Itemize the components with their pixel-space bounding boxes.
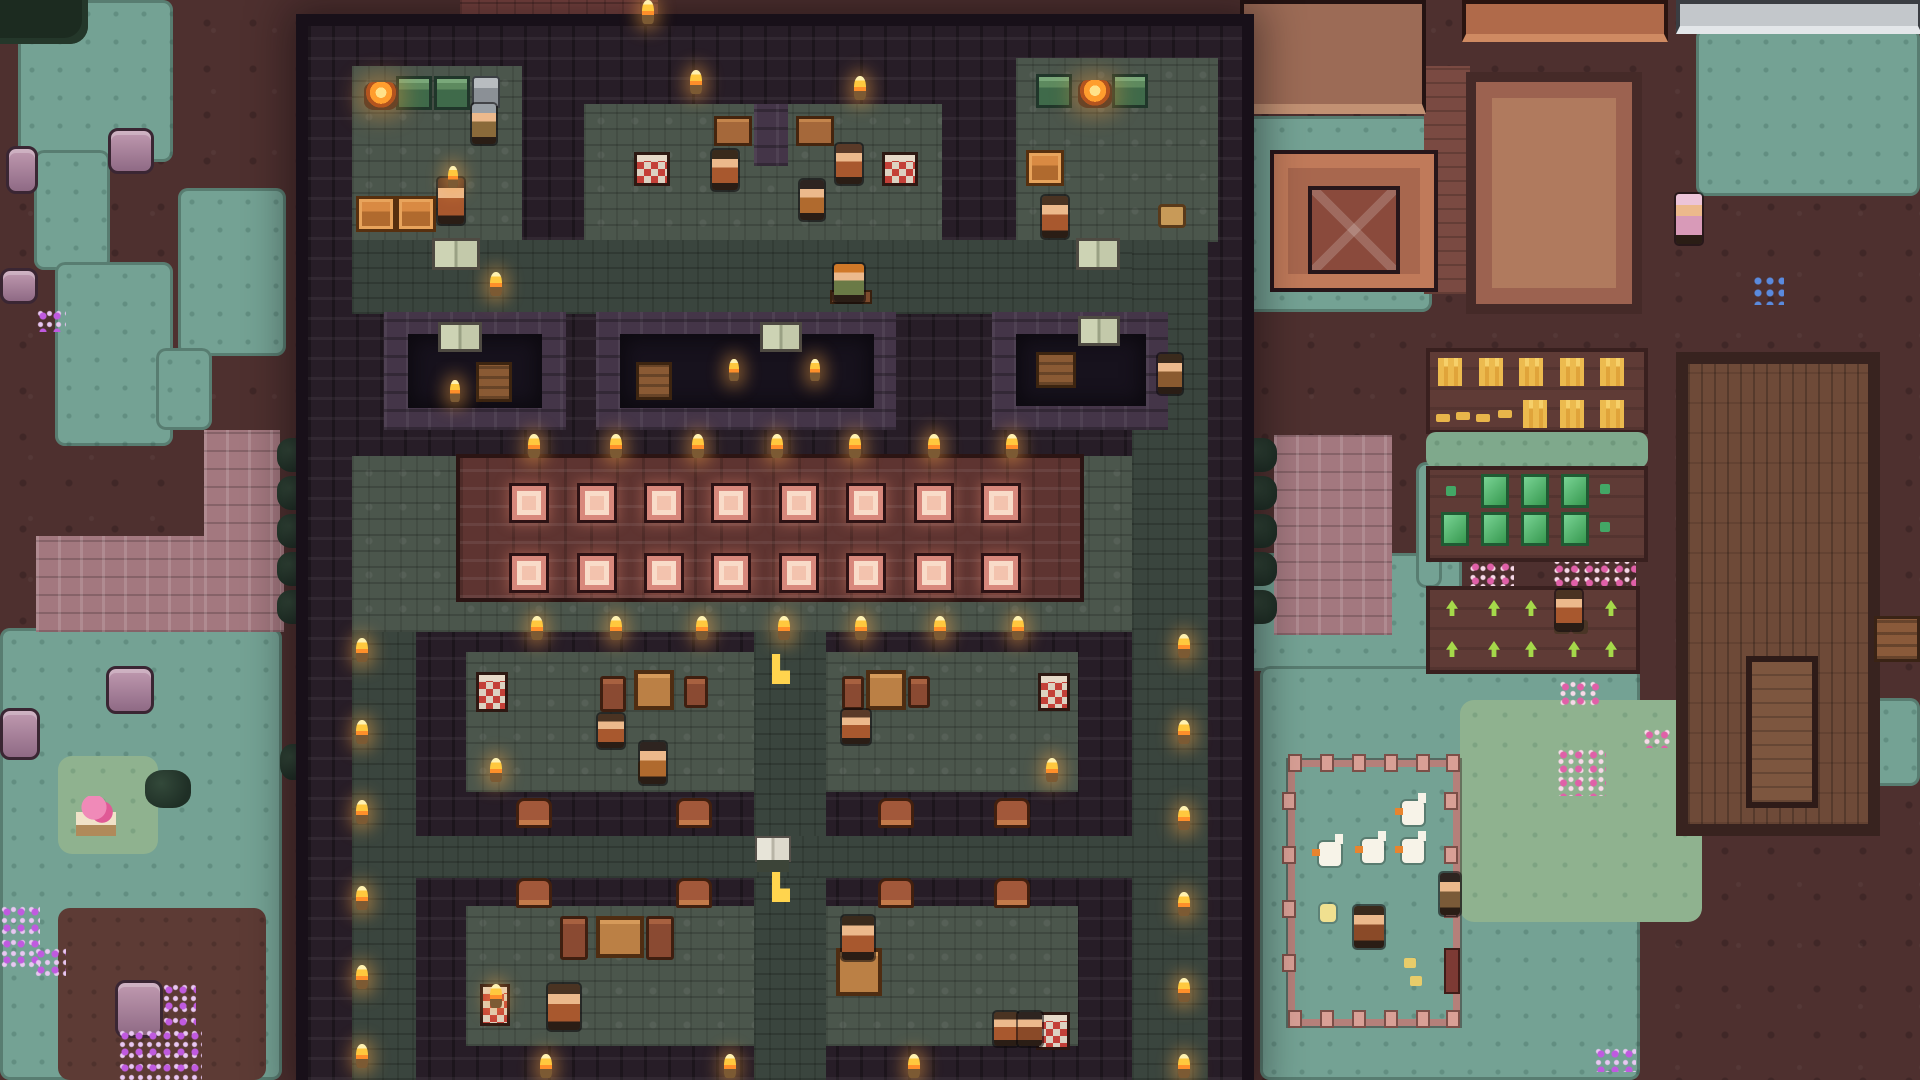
wheat[interactable] — [1560, 358, 1584, 386]
pC — [1676, 0, 1920, 34]
pDi — [1308, 186, 1400, 274]
torch[interactable] — [356, 886, 368, 910]
torch[interactable] — [450, 380, 460, 402]
flowers-pink — [1556, 748, 1606, 796]
campfire[interactable] — [364, 82, 398, 110]
teal — [1696, 28, 1920, 196]
wheat[interactable] — [1600, 400, 1624, 428]
mushroom[interactable] — [76, 796, 116, 836]
trees — [0, 0, 88, 44]
seat[interactable] — [512, 486, 546, 520]
crate[interactable] — [476, 362, 512, 402]
fence-post — [1282, 954, 1296, 972]
bed-green[interactable] — [396, 76, 432, 110]
hedge — [145, 770, 191, 808]
villager[interactable] — [800, 180, 824, 220]
door-brown[interactable] — [516, 798, 552, 828]
table[interactable] — [866, 670, 906, 710]
bed-green[interactable] — [1112, 74, 1148, 108]
torch[interactable] — [490, 758, 502, 782]
hedge — [1241, 514, 1277, 548]
seat[interactable] — [580, 486, 614, 520]
flowers-purple — [1594, 1046, 1636, 1072]
torch[interactable] — [540, 1054, 552, 1078]
rock — [108, 128, 154, 174]
seat[interactable] — [782, 486, 816, 520]
door-brown[interactable] — [994, 798, 1030, 828]
villager[interactable] — [1042, 196, 1068, 238]
wheat-stub[interactable] — [1436, 414, 1450, 422]
chicken[interactable] — [1362, 839, 1384, 863]
door-stone[interactable] — [1078, 316, 1120, 346]
table[interactable] — [596, 916, 644, 958]
hedge — [1241, 438, 1277, 472]
rock — [0, 708, 40, 760]
bed-checker[interactable] — [1038, 673, 1070, 711]
chest[interactable] — [396, 196, 436, 232]
flowers-pink — [1558, 680, 1600, 706]
wheat-stub[interactable] — [1498, 410, 1512, 418]
seat[interactable] — [647, 486, 681, 520]
torch[interactable] — [855, 616, 867, 640]
door-brown[interactable] — [676, 878, 712, 908]
torch[interactable] — [356, 800, 368, 824]
crop-dot[interactable] — [1446, 486, 1456, 496]
villager[interactable] — [1354, 906, 1384, 948]
torch[interactable] — [1178, 1054, 1190, 1078]
chicken[interactable] — [1319, 842, 1341, 866]
torch[interactable] — [610, 434, 622, 458]
hedge — [1241, 552, 1277, 586]
seat[interactable] — [647, 556, 681, 590]
torch[interactable] — [1178, 634, 1190, 658]
flowers-purple — [162, 982, 196, 1026]
villager[interactable] — [1556, 590, 1582, 630]
fence-post — [1282, 900, 1296, 918]
chick[interactable] — [1320, 904, 1336, 922]
cropsq[interactable] — [1441, 512, 1469, 546]
door-stone[interactable] — [760, 322, 802, 352]
torch[interactable] — [356, 965, 368, 989]
campfire[interactable] — [1078, 80, 1112, 108]
door-brown[interactable] — [516, 878, 552, 908]
villager[interactable] — [834, 264, 864, 302]
rock — [106, 666, 154, 714]
fence-post — [1416, 1010, 1430, 1028]
torch[interactable] — [690, 70, 702, 94]
door-brown[interactable] — [994, 878, 1030, 908]
torch[interactable] — [1178, 720, 1190, 744]
torch[interactable] — [928, 434, 940, 458]
villager[interactable] — [1158, 354, 1182, 394]
torch[interactable] — [1006, 434, 1018, 458]
torch[interactable] — [810, 359, 820, 381]
wheat[interactable] — [1438, 358, 1462, 386]
flowers-blue — [1752, 275, 1784, 305]
villager[interactable] — [1440, 873, 1460, 915]
door-brown[interactable] — [676, 798, 712, 828]
door-brown[interactable] — [878, 878, 914, 908]
hedge — [1241, 590, 1277, 624]
seat[interactable] — [849, 556, 883, 590]
torch[interactable] — [490, 272, 502, 296]
chicken[interactable] — [1402, 801, 1424, 825]
door-under — [757, 860, 789, 872]
villager[interactable] — [1676, 194, 1702, 244]
villager[interactable] — [994, 1012, 1018, 1046]
cropsq[interactable] — [1561, 474, 1589, 508]
wheat[interactable] — [1600, 358, 1624, 386]
fence-post — [1384, 1010, 1398, 1028]
rock — [6, 146, 38, 194]
chest[interactable] — [1026, 150, 1064, 186]
brickpad — [460, 0, 658, 28]
hedge — [280, 744, 310, 780]
torch[interactable] — [1178, 892, 1190, 916]
torch[interactable] — [1178, 978, 1190, 1002]
crop-dot[interactable] — [1600, 522, 1610, 532]
chair[interactable] — [908, 676, 930, 708]
villager[interactable] — [842, 916, 874, 960]
bed-checker[interactable] — [476, 672, 508, 712]
seat[interactable] — [714, 486, 748, 520]
door-stone[interactable] — [1076, 238, 1120, 270]
cropsq[interactable] — [1521, 474, 1549, 508]
soil — [1426, 586, 1640, 674]
cropsq[interactable] — [1561, 512, 1589, 546]
torch[interactable] — [771, 434, 783, 458]
torch[interactable] — [356, 1044, 368, 1068]
crate[interactable] — [1036, 352, 1076, 388]
seat[interactable] — [782, 556, 816, 590]
villager[interactable] — [836, 144, 862, 184]
fence-post — [1352, 754, 1366, 772]
torch[interactable] — [490, 984, 502, 1008]
pB — [1462, 0, 1668, 42]
teal — [178, 188, 286, 356]
seat[interactable] — [512, 556, 546, 590]
crate[interactable] — [636, 362, 672, 400]
flowers-purple — [34, 946, 66, 976]
bed-green[interactable] — [1036, 74, 1072, 108]
villager[interactable] — [598, 714, 624, 748]
torch[interactable] — [1046, 758, 1058, 782]
crop-dot[interactable] — [1600, 484, 1610, 494]
cropsq[interactable] — [1521, 512, 1549, 546]
hedge — [1241, 476, 1277, 510]
bed-checker[interactable] — [634, 152, 670, 186]
table-sm[interactable] — [796, 116, 834, 146]
torch[interactable] — [356, 638, 368, 662]
fence-post — [1288, 1010, 1302, 1028]
cropsq[interactable] — [1481, 512, 1509, 546]
fence-post — [1320, 754, 1334, 772]
flowers-purple — [118, 1028, 202, 1080]
seat[interactable] — [714, 556, 748, 590]
flowers-purple — [36, 308, 66, 332]
torch[interactable] — [934, 616, 946, 640]
fence — [1288, 760, 1460, 1026]
bed-green[interactable] — [434, 76, 470, 110]
chest[interactable] — [356, 196, 396, 232]
fence-post — [1444, 846, 1458, 864]
steps[interactable] — [1874, 616, 1920, 662]
door-stone[interactable] — [438, 322, 482, 352]
chair[interactable] — [684, 676, 708, 708]
torch[interactable] — [356, 720, 368, 744]
chair[interactable] — [842, 676, 864, 710]
cropsq[interactable] — [1481, 474, 1509, 508]
chicken[interactable] — [1402, 839, 1424, 863]
wheat[interactable] — [1560, 400, 1584, 428]
torch[interactable] — [448, 166, 458, 188]
fence-post — [1446, 754, 1460, 772]
fence-post — [1416, 754, 1430, 772]
villager[interactable] — [548, 984, 580, 1030]
stool[interactable] — [1158, 204, 1186, 228]
fence-post — [1352, 1010, 1366, 1028]
wheat-stub[interactable] — [1476, 414, 1490, 422]
fence-post — [1282, 792, 1296, 810]
grass-strip — [1426, 432, 1648, 468]
game-viewport — [0, 0, 1920, 1080]
torch[interactable] — [854, 76, 866, 100]
seat[interactable] — [984, 486, 1018, 520]
table[interactable] — [634, 670, 674, 710]
torch[interactable] — [1178, 806, 1190, 830]
wheat[interactable] — [1519, 358, 1543, 386]
door-stone[interactable] — [432, 238, 480, 270]
fence-post — [1320, 1010, 1334, 1028]
villager[interactable] — [640, 742, 666, 784]
pinkpath — [1274, 435, 1392, 635]
feed[interactable] — [1404, 958, 1416, 968]
torch[interactable] — [849, 434, 861, 458]
pFi — [1746, 656, 1818, 808]
rock — [0, 268, 38, 304]
wheat[interactable] — [1479, 358, 1503, 386]
villager[interactable] — [472, 104, 496, 144]
seat[interactable] — [580, 556, 614, 590]
bed-checker[interactable] — [882, 152, 918, 186]
table-sm[interactable] — [714, 116, 752, 146]
room-wall — [754, 104, 788, 166]
seat[interactable] — [984, 556, 1018, 590]
teal — [34, 150, 110, 270]
teal — [156, 348, 212, 430]
wheat[interactable] — [1523, 400, 1547, 428]
torch[interactable] — [692, 434, 704, 458]
door-white[interactable] — [755, 836, 791, 862]
fence-post — [1288, 754, 1302, 772]
villager[interactable] — [842, 710, 870, 744]
fence-post — [1282, 846, 1296, 864]
chair[interactable] — [560, 916, 588, 960]
fence-post — [1446, 1010, 1460, 1028]
seat[interactable] — [917, 486, 951, 520]
seat[interactable] — [849, 486, 883, 520]
chair[interactable] — [600, 676, 626, 712]
torch[interactable] — [724, 1054, 736, 1078]
pE — [1466, 72, 1642, 314]
pA — [1240, 0, 1426, 114]
fence-post — [1384, 754, 1398, 772]
villager[interactable] — [1018, 1012, 1042, 1046]
seat[interactable] — [917, 556, 951, 590]
chair[interactable] — [646, 916, 674, 960]
fence-gate[interactable] — [1444, 948, 1460, 994]
pinkpath — [204, 430, 280, 632]
torch[interactable] — [610, 616, 622, 640]
door-brown[interactable] — [878, 798, 914, 828]
torch[interactable] — [531, 616, 543, 640]
torch[interactable] — [642, 0, 654, 24]
feed[interactable] — [1410, 976, 1422, 986]
torch[interactable] — [729, 359, 739, 381]
flowers-pink — [1642, 728, 1672, 748]
wheat-stub[interactable] — [1456, 412, 1470, 420]
villager[interactable] — [712, 150, 738, 190]
torch[interactable] — [908, 1054, 920, 1078]
torch[interactable] — [528, 434, 540, 458]
torch[interactable] — [696, 616, 708, 640]
torch[interactable] — [1012, 616, 1024, 640]
fence-post — [1444, 792, 1458, 810]
torch[interactable] — [778, 616, 790, 640]
